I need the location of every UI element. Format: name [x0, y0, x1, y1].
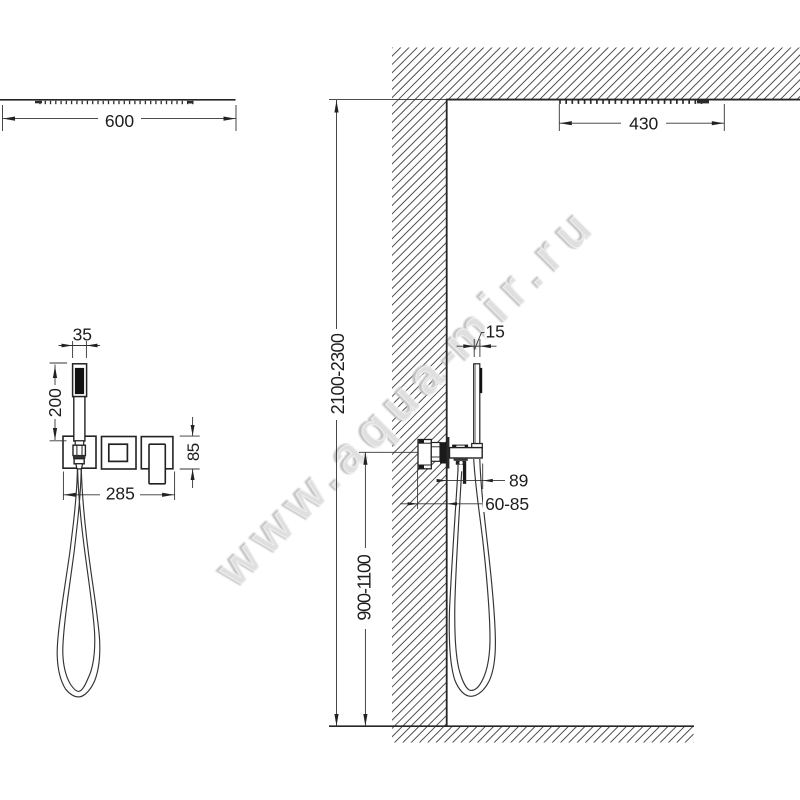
svg-text:60-85: 60-85	[485, 494, 529, 514]
svg-text:900-1100: 900-1100	[354, 554, 374, 620]
svg-text:85: 85	[184, 443, 203, 461]
svg-text:www.aqua-mir.ru: www.aqua-mir.ru	[205, 193, 610, 598]
svg-text:89: 89	[509, 471, 528, 491]
svg-text:35: 35	[73, 325, 92, 345]
svg-text:200: 200	[45, 388, 65, 417]
svg-text:285: 285	[106, 483, 135, 503]
svg-text:15: 15	[485, 321, 504, 341]
svg-text:2100-2300: 2100-2300	[328, 333, 348, 414]
svg-text:430: 430	[629, 114, 658, 134]
svg-text:600: 600	[105, 111, 134, 131]
